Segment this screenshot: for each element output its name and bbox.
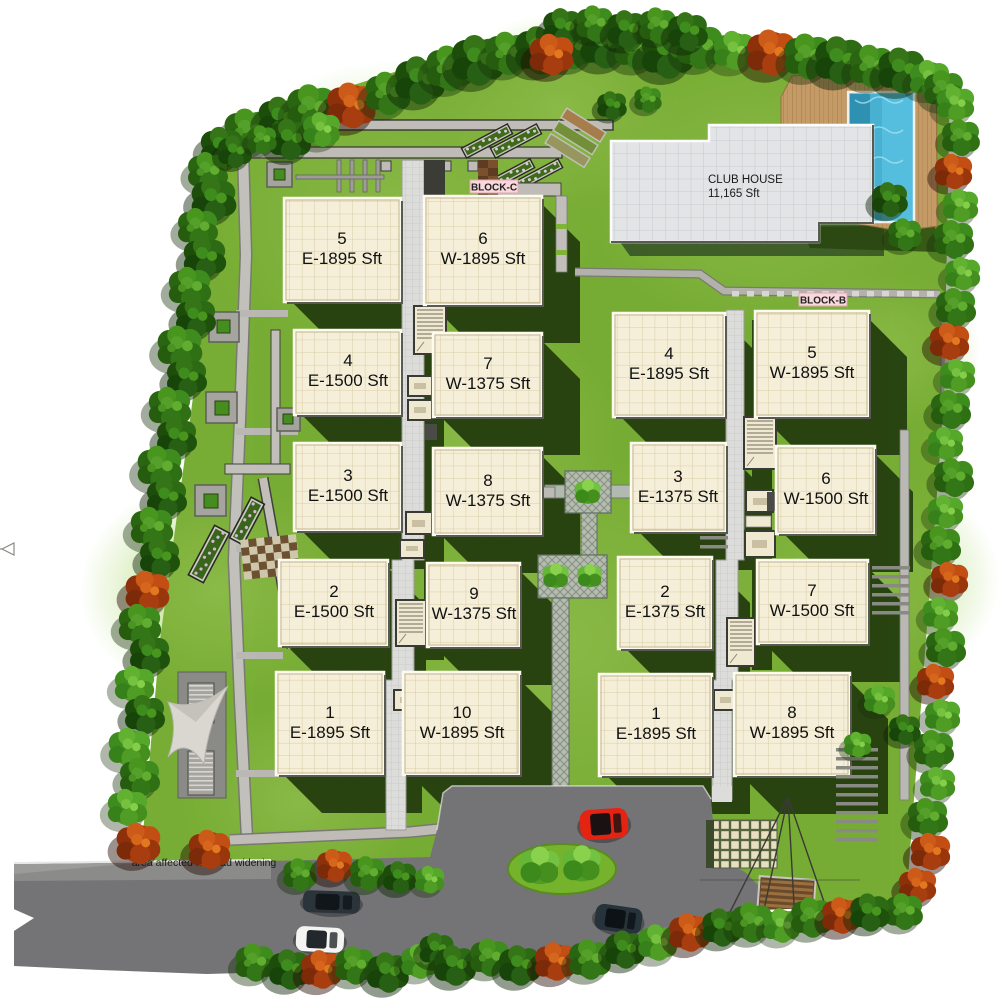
svg-text:E-1895 Sft: E-1895 Sft [616, 724, 697, 743]
svg-text:E-1895 Sft: E-1895 Sft [302, 249, 383, 268]
svg-text:E-1500 Sft: E-1500 Sft [308, 371, 389, 390]
svg-text:8: 8 [483, 471, 492, 490]
svg-text:1: 1 [651, 704, 660, 723]
svg-text:W-1500 Sft: W-1500 Sft [770, 601, 855, 620]
svg-text:4: 4 [343, 351, 352, 370]
svg-text:1: 1 [325, 703, 334, 722]
svg-text:3: 3 [673, 467, 682, 486]
svg-text:2: 2 [660, 582, 669, 601]
svg-text:10: 10 [453, 703, 472, 722]
svg-text:W-1375 Sft: W-1375 Sft [432, 604, 517, 623]
svg-text:5: 5 [807, 343, 816, 362]
svg-text:7: 7 [483, 354, 492, 373]
svg-text:6: 6 [821, 469, 830, 488]
svg-text:E-1500 Sft: E-1500 Sft [294, 602, 375, 621]
svg-text:11,165 Sft: 11,165 Sft [708, 188, 760, 200]
svg-text:3: 3 [343, 466, 352, 485]
svg-text:2: 2 [329, 582, 338, 601]
svg-text:W-1895 Sft: W-1895 Sft [441, 249, 526, 268]
svg-text:E-1500 Sft: E-1500 Sft [308, 486, 389, 505]
svg-text:CLUB HOUSE: CLUB HOUSE [708, 174, 783, 186]
svg-text:E-1895 Sft: E-1895 Sft [629, 364, 710, 383]
svg-text:5: 5 [337, 229, 346, 248]
svg-text:9: 9 [469, 584, 478, 603]
svg-text:7: 7 [807, 581, 816, 600]
svg-text:W-1895 Sft: W-1895 Sft [770, 363, 855, 382]
svg-text:6: 6 [478, 229, 487, 248]
svg-text:E-1375 Sft: E-1375 Sft [625, 602, 706, 621]
svg-text:4: 4 [664, 344, 673, 363]
svg-text:E-1895 Sft: E-1895 Sft [290, 723, 371, 742]
svg-text:W-1500 Sft: W-1500 Sft [784, 489, 869, 508]
svg-text:W-1375 Sft: W-1375 Sft [446, 374, 531, 393]
svg-text:W-1895 Sft: W-1895 Sft [750, 723, 835, 742]
svg-text:BLOCK-B: BLOCK-B [800, 296, 846, 307]
svg-text:E-1375 Sft: E-1375 Sft [638, 487, 719, 506]
svg-text:W-1375 Sft: W-1375 Sft [446, 491, 531, 510]
svg-text:BLOCK-C: BLOCK-C [471, 183, 517, 194]
svg-text:W-1895 Sft: W-1895 Sft [420, 723, 505, 742]
svg-text:8: 8 [787, 703, 796, 722]
